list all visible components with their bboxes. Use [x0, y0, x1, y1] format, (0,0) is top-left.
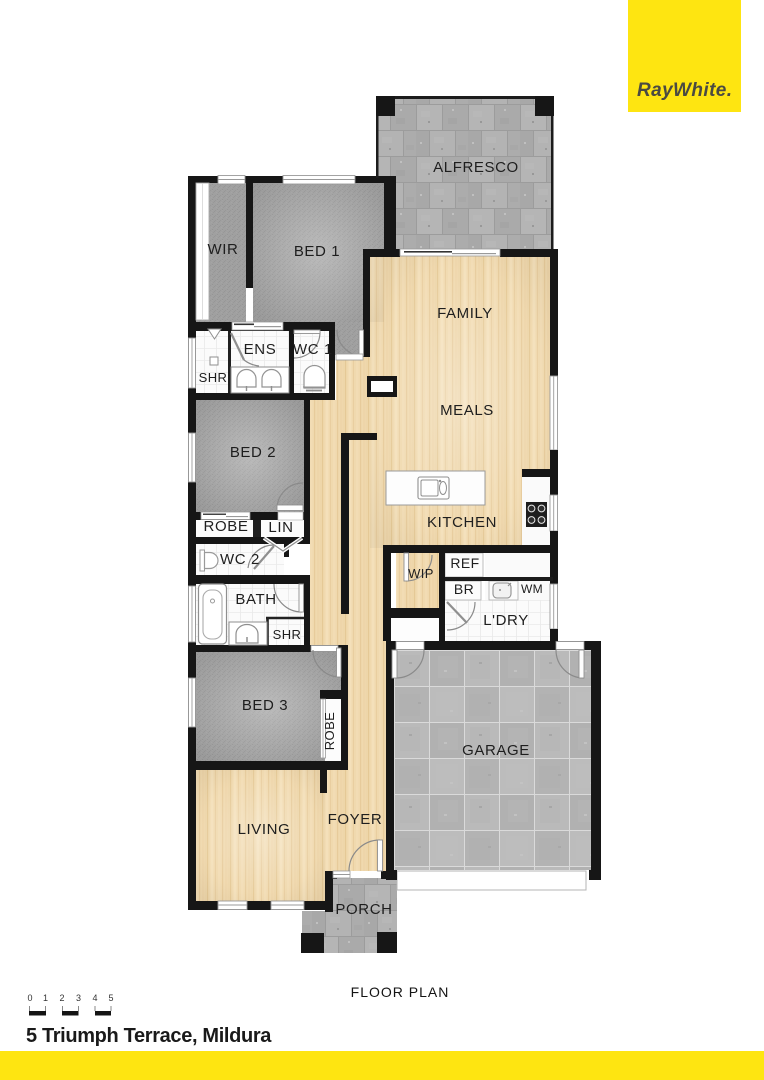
svg-text:MEALS: MEALS: [440, 402, 494, 419]
svg-text:5: 5: [108, 993, 113, 1003]
svg-text:PORCH: PORCH: [335, 901, 392, 918]
svg-text:BR: BR: [454, 581, 474, 597]
svg-text:BATH: BATH: [235, 591, 276, 608]
svg-text:3: 3: [76, 993, 81, 1003]
svg-text:5 Triumph Terrace, Mildura: 5 Triumph Terrace, Mildura: [26, 1025, 272, 1047]
svg-text:ENS: ENS: [244, 341, 277, 358]
svg-text:SHR: SHR: [273, 627, 302, 642]
svg-text:BED 2: BED 2: [230, 444, 276, 461]
svg-text:WC 1: WC 1: [293, 341, 333, 358]
svg-text:WIR: WIR: [208, 241, 239, 258]
svg-text:1: 1: [43, 993, 48, 1003]
svg-text:SHR: SHR: [199, 370, 228, 385]
svg-text:0: 0: [27, 993, 32, 1003]
svg-text:KITCHEN: KITCHEN: [427, 514, 497, 531]
svg-text:ALFRESCO: ALFRESCO: [433, 159, 519, 176]
svg-text:4: 4: [92, 993, 97, 1003]
svg-text:L'DRY: L'DRY: [483, 612, 529, 629]
svg-text:BED 3: BED 3: [242, 697, 288, 714]
svg-text:WIP: WIP: [408, 566, 434, 581]
svg-text:FAMILY: FAMILY: [437, 305, 493, 322]
svg-text:BED 1: BED 1: [294, 243, 340, 260]
svg-text:RayWhite.: RayWhite.: [637, 80, 732, 101]
svg-text:ROBE: ROBE: [204, 518, 249, 535]
svg-text:LIVING: LIVING: [238, 821, 291, 838]
svg-text:WC 2: WC 2: [220, 551, 260, 568]
svg-text:FLOOR PLAN: FLOOR PLAN: [351, 984, 450, 1000]
svg-text:WM: WM: [521, 582, 543, 596]
svg-text:GARAGE: GARAGE: [462, 742, 530, 759]
svg-text:FOYER: FOYER: [328, 811, 383, 828]
svg-text:LIN: LIN: [268, 519, 293, 536]
svg-text:ROBE: ROBE: [322, 712, 337, 750]
svg-text:2: 2: [59, 993, 64, 1003]
svg-text:REF: REF: [450, 555, 479, 571]
